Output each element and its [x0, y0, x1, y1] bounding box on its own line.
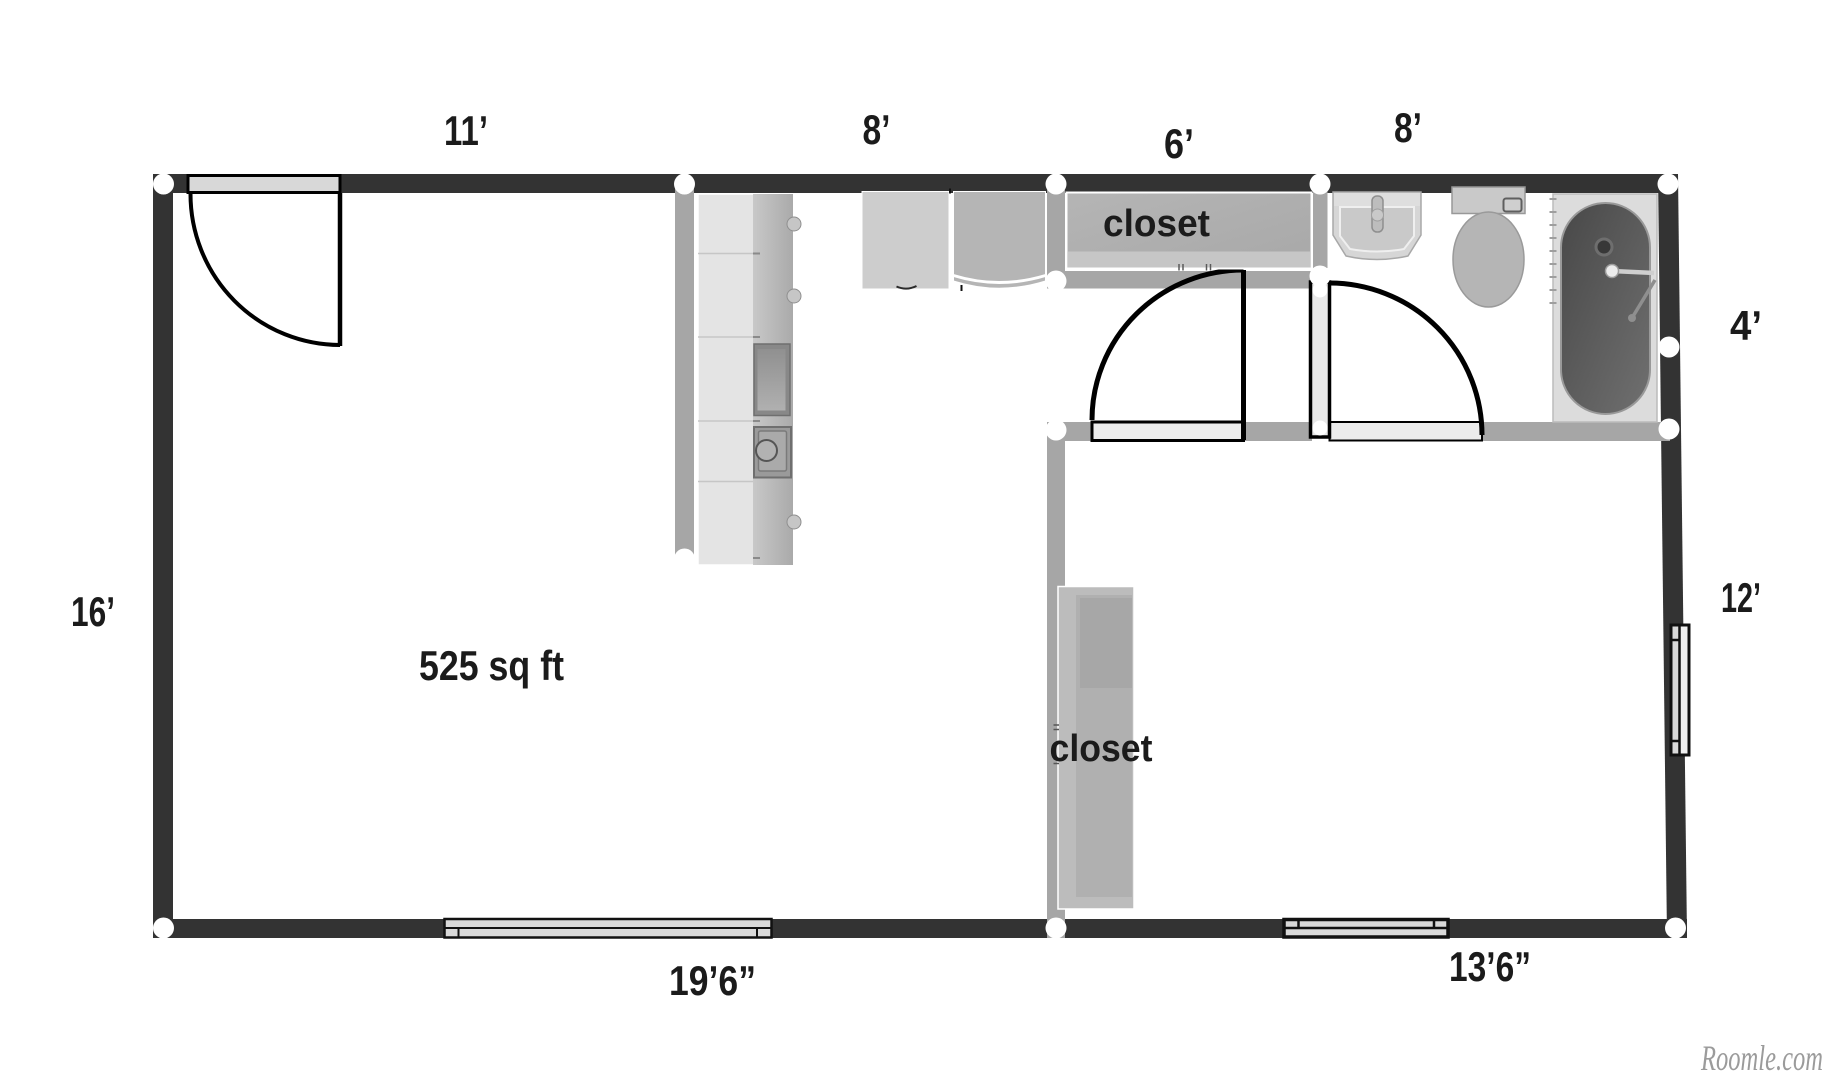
- svg-text:11’: 11’: [444, 107, 488, 154]
- svg-text:closet: closet: [1103, 203, 1210, 245]
- svg-text:8’: 8’: [863, 106, 891, 153]
- svg-text:13’6”: 13’6”: [1449, 943, 1531, 990]
- svg-text:16’: 16’: [71, 588, 115, 635]
- svg-text:closet: closet: [1050, 728, 1153, 770]
- svg-text:4’: 4’: [1730, 302, 1762, 349]
- svg-text:12’: 12’: [1721, 574, 1761, 621]
- svg-text:8’: 8’: [1394, 104, 1422, 151]
- svg-text:525 sq ft: 525 sq ft: [419, 642, 564, 689]
- svg-text:Roomle.com: Roomle.com: [1700, 1038, 1823, 1078]
- svg-text:19’6”: 19’6”: [669, 957, 756, 1004]
- svg-text:6’: 6’: [1164, 120, 1194, 167]
